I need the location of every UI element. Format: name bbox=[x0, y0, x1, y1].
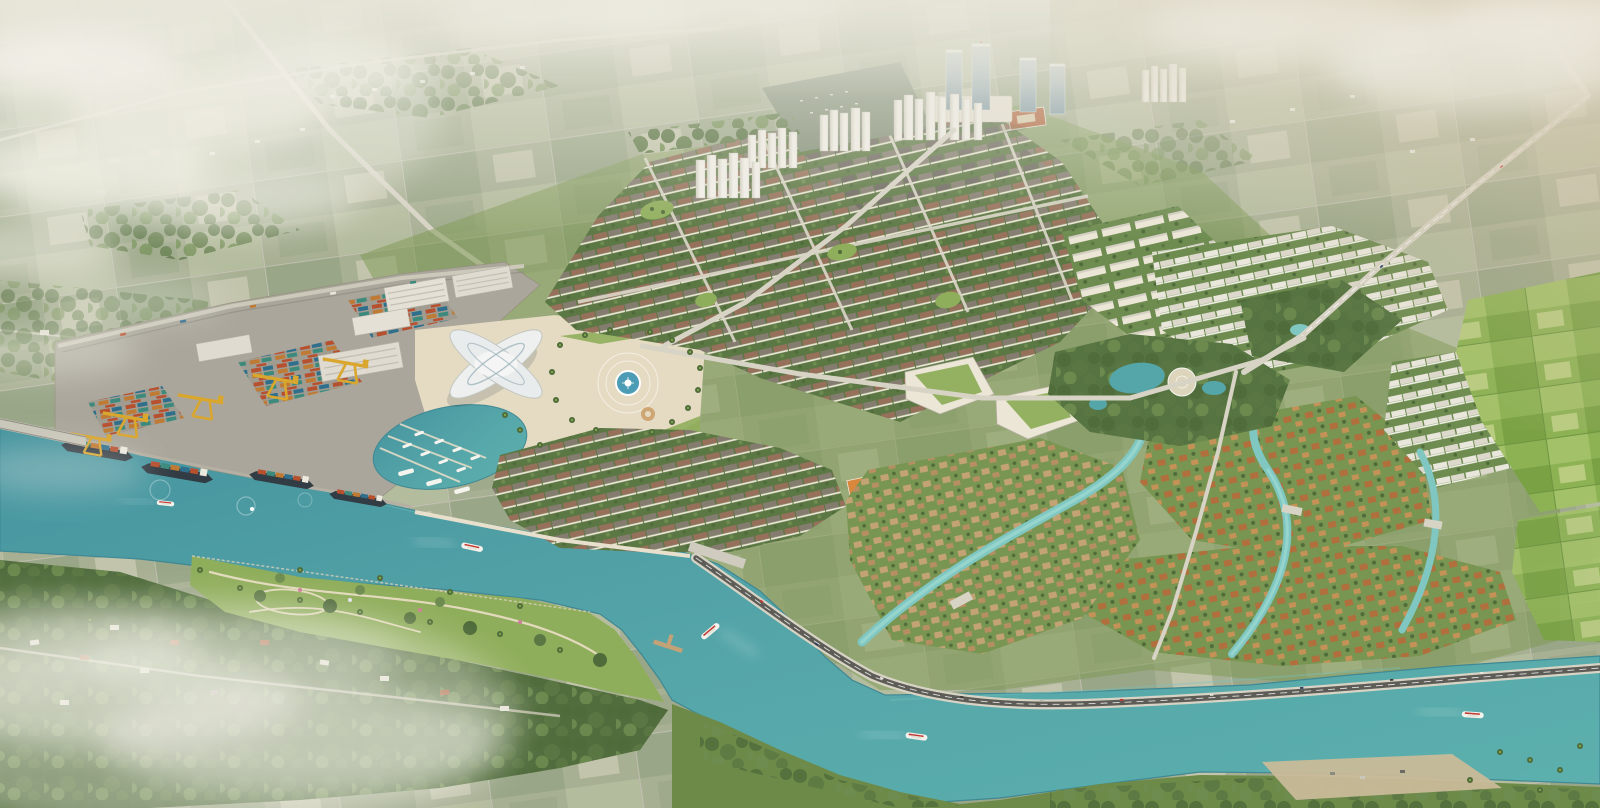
scene-canvas: Aerial rendering of a riverside township… bbox=[0, 0, 1600, 808]
parked-car bbox=[1330, 772, 1335, 775]
parked-car bbox=[1400, 770, 1405, 773]
aerial-masterplan-rendering: Aerial rendering of a riverside township… bbox=[0, 0, 1600, 808]
parked-car bbox=[1360, 776, 1365, 779]
